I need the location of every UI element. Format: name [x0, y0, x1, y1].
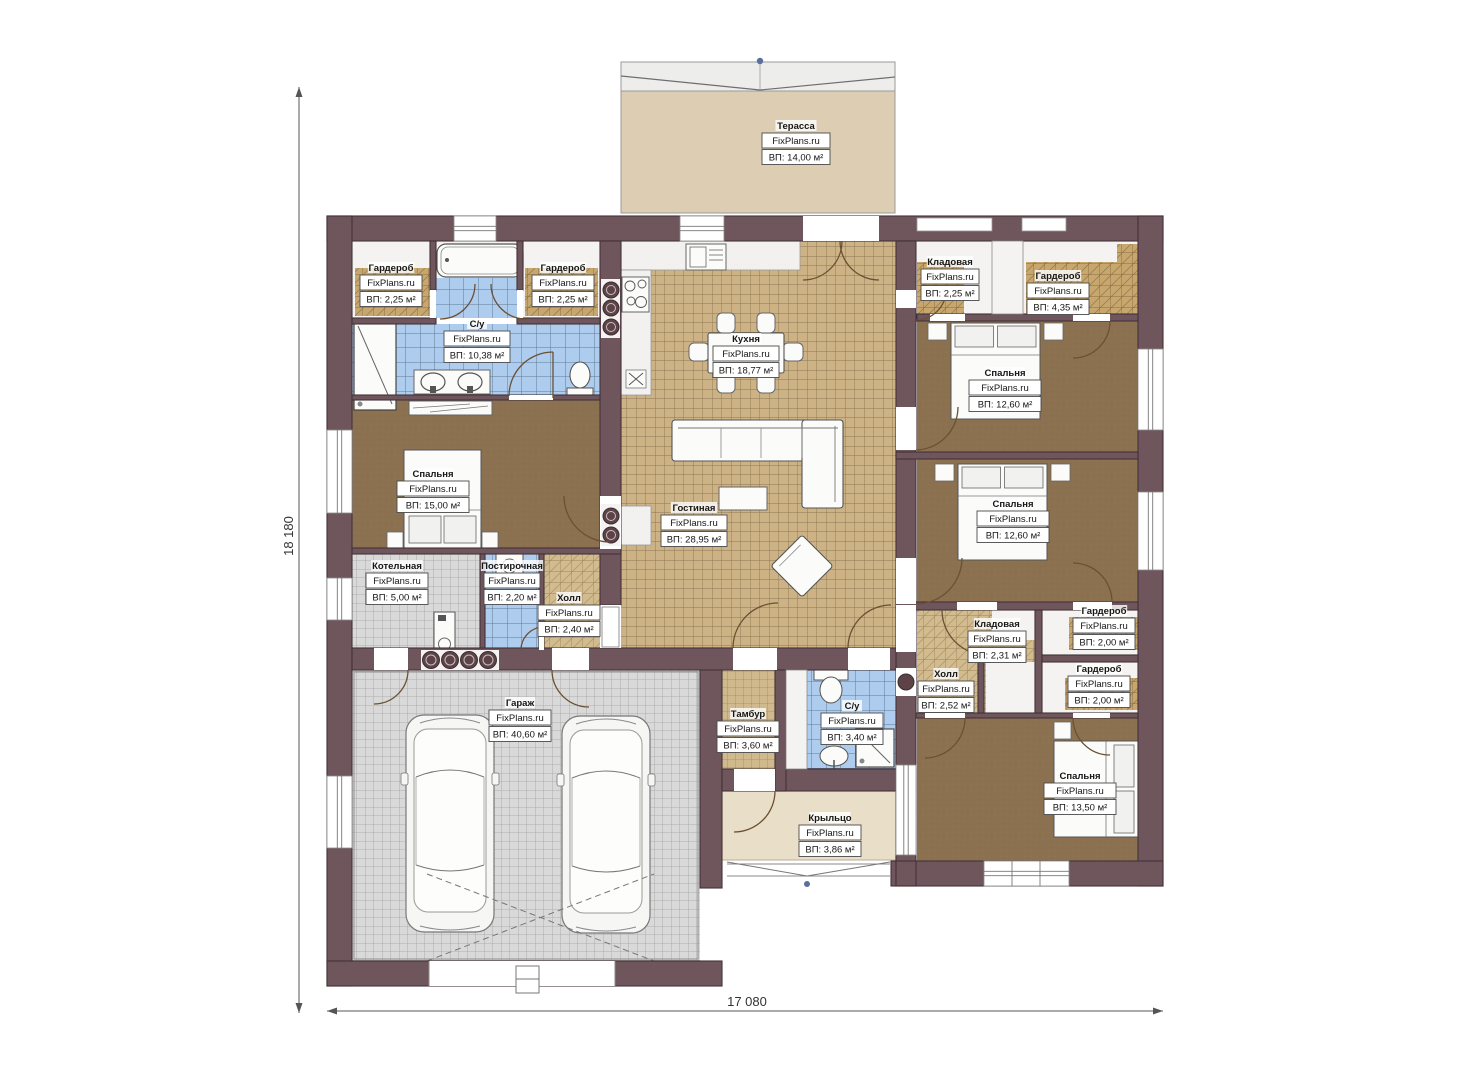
svg-text:FixPlans.ru: FixPlans.ru	[772, 136, 820, 147]
svg-text:FixPlans.ru: FixPlans.ru	[926, 272, 974, 283]
svg-text:ВП: 3,86 м²: ВП: 3,86 м²	[805, 845, 854, 856]
svg-text:ВП: 3,60 м²: ВП: 3,60 м²	[723, 741, 772, 752]
svg-text:Постирочная: Постирочная	[481, 561, 543, 572]
svg-text:ВП: 13,50 м²: ВП: 13,50 м²	[1053, 803, 1108, 814]
svg-text:FixPlans.ru: FixPlans.ru	[724, 724, 772, 735]
svg-text:ВП: 2,25 м²: ВП: 2,25 м²	[925, 289, 974, 300]
svg-text:ВП: 2,00 м²: ВП: 2,00 м²	[1079, 638, 1128, 649]
svg-text:Гардероб: Гардероб	[369, 263, 414, 274]
svg-text:FixPlans.ru: FixPlans.ru	[367, 278, 415, 289]
svg-text:FixPlans.ru: FixPlans.ru	[539, 278, 587, 289]
svg-text:Гардероб: Гардероб	[1082, 606, 1127, 617]
svg-text:17 080: 17 080	[727, 994, 767, 1009]
svg-text:Холл: Холл	[557, 593, 581, 604]
svg-text:FixPlans.ru: FixPlans.ru	[1034, 286, 1082, 297]
svg-text:Тамбур: Тамбур	[731, 709, 766, 720]
svg-text:FixPlans.ru: FixPlans.ru	[1056, 786, 1104, 797]
svg-text:ВП: 5,00 м²: ВП: 5,00 м²	[372, 593, 421, 604]
svg-text:ВП: 14,00 м²: ВП: 14,00 м²	[769, 153, 824, 164]
svg-text:ВП: 4,35 м²: ВП: 4,35 м²	[1033, 303, 1082, 314]
svg-text:FixPlans.ru: FixPlans.ru	[973, 634, 1021, 645]
svg-text:Гардероб: Гардероб	[1077, 664, 1122, 675]
svg-text:FixPlans.ru: FixPlans.ru	[1080, 621, 1128, 632]
svg-text:ВП: 2,40 м²: ВП: 2,40 м²	[544, 625, 593, 636]
svg-text:ВП: 2,25 м²: ВП: 2,25 м²	[366, 295, 415, 306]
svg-text:Котельная: Котельная	[372, 561, 422, 572]
svg-text:Холл: Холл	[934, 669, 958, 680]
svg-text:ВП: 12,60 м²: ВП: 12,60 м²	[978, 400, 1033, 411]
svg-text:Спальня: Спальня	[1059, 771, 1100, 782]
svg-text:ВП: 2,00 м²: ВП: 2,00 м²	[1074, 696, 1123, 707]
svg-text:Кухня: Кухня	[732, 334, 760, 345]
svg-text:Терасса: Терасса	[777, 121, 815, 132]
svg-text:FixPlans.ru: FixPlans.ru	[981, 383, 1029, 394]
svg-text:Гардероб: Гардероб	[1036, 271, 1081, 282]
svg-text:ВП: 2,31 м²: ВП: 2,31 м²	[972, 651, 1021, 662]
svg-text:ВП: 28,95 м²: ВП: 28,95 м²	[667, 535, 722, 546]
svg-text:ВП: 3,40 м²: ВП: 3,40 м²	[827, 733, 876, 744]
svg-text:Кладовая: Кладовая	[974, 619, 1020, 630]
svg-text:FixPlans.ru: FixPlans.ru	[806, 828, 854, 839]
svg-text:ВП: 2,20 м²: ВП: 2,20 м²	[487, 593, 536, 604]
svg-text:FixPlans.ru: FixPlans.ru	[373, 576, 421, 587]
svg-text:FixPlans.ru: FixPlans.ru	[989, 514, 1037, 525]
svg-text:Гараж: Гараж	[506, 698, 535, 709]
svg-text:Спальня: Спальня	[412, 469, 453, 480]
svg-text:ВП: 18,77 м²: ВП: 18,77 м²	[719, 366, 774, 377]
svg-text:Гардероб: Гардероб	[541, 263, 586, 274]
svg-text:FixPlans.ru: FixPlans.ru	[922, 684, 970, 695]
svg-text:ВП: 10,38 м²: ВП: 10,38 м²	[450, 351, 505, 362]
svg-text:FixPlans.ru: FixPlans.ru	[828, 716, 876, 727]
svg-text:Гостиная: Гостиная	[673, 503, 716, 514]
svg-text:FixPlans.ru: FixPlans.ru	[496, 713, 544, 724]
svg-text:ВП: 40,60 м²: ВП: 40,60 м²	[493, 730, 548, 741]
svg-text:ВП: 15,00 м²: ВП: 15,00 м²	[406, 501, 461, 512]
svg-text:18 180: 18 180	[281, 516, 296, 556]
svg-text:FixPlans.ru: FixPlans.ru	[488, 576, 536, 587]
svg-text:Спальня: Спальня	[984, 368, 1025, 379]
svg-text:FixPlans.ru: FixPlans.ru	[545, 608, 593, 619]
svg-text:FixPlans.ru: FixPlans.ru	[1075, 679, 1123, 690]
svg-text:Кладовая: Кладовая	[927, 257, 973, 268]
svg-text:FixPlans.ru: FixPlans.ru	[722, 349, 770, 360]
svg-text:С/у: С/у	[470, 319, 486, 330]
svg-text:Спальня: Спальня	[992, 499, 1033, 510]
svg-text:FixPlans.ru: FixPlans.ru	[453, 334, 501, 345]
svg-text:FixPlans.ru: FixPlans.ru	[409, 484, 457, 495]
svg-text:С/у: С/у	[845, 701, 861, 712]
svg-text:FixPlans.ru: FixPlans.ru	[670, 518, 718, 529]
svg-text:Крыльцо: Крыльцо	[808, 813, 851, 824]
svg-text:ВП: 12,60 м²: ВП: 12,60 м²	[986, 531, 1041, 542]
svg-text:ВП: 2,52 м²: ВП: 2,52 м²	[921, 701, 970, 712]
svg-text:ВП: 2,25 м²: ВП: 2,25 м²	[538, 295, 587, 306]
